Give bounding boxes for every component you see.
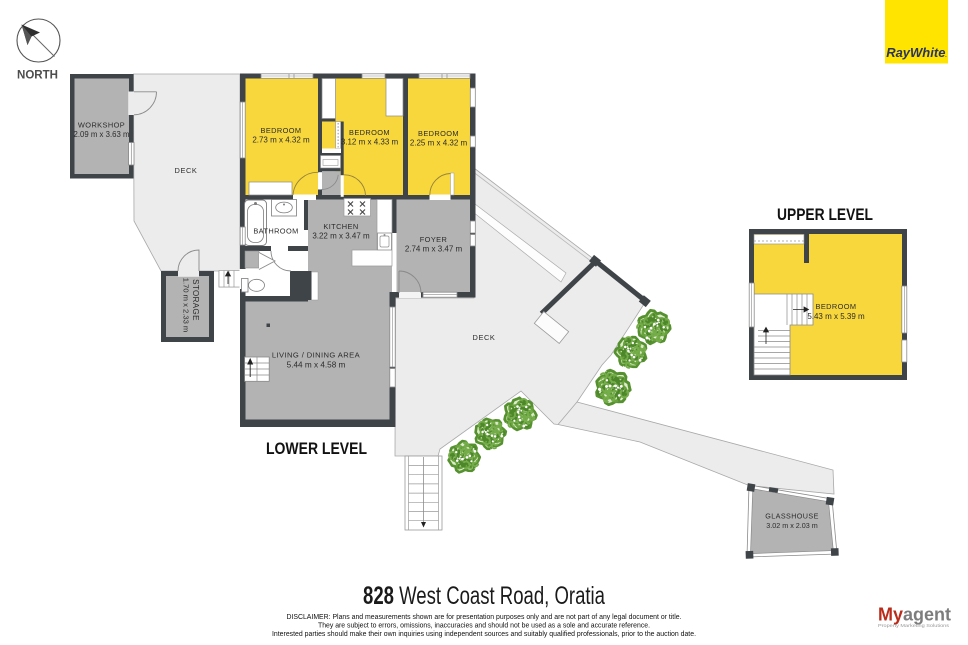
svg-text:5.44 m x 4.58 m: 5.44 m x 4.58 m	[287, 361, 346, 370]
svg-text:BEDROOM: BEDROOM	[418, 129, 459, 138]
svg-text:GLASSHOUSE: GLASSHOUSE	[765, 512, 819, 521]
svg-text:Property Marketing Solutions: Property Marketing Solutions	[878, 623, 950, 629]
svg-text:DECK: DECK	[473, 333, 496, 342]
svg-text:BATHROOM: BATHROOM	[253, 227, 298, 236]
svg-text:KITCHEN: KITCHEN	[323, 222, 358, 231]
svg-text:Myagent: Myagent	[878, 604, 951, 625]
svg-text:NORTH: NORTH	[17, 70, 58, 82]
svg-text:Interested parties should make: Interested parties should make their own…	[272, 629, 696, 638]
svg-text:BEDROOM: BEDROOM	[816, 302, 857, 311]
svg-text:DECK: DECK	[175, 166, 198, 175]
svg-text:3.02 m x 2.03 m: 3.02 m x 2.03 m	[766, 521, 818, 530]
svg-text:BEDROOM: BEDROOM	[349, 128, 390, 137]
svg-text:2.74 m x 3.47 m: 2.74 m x 3.47 m	[405, 244, 463, 253]
svg-text:LIVING / DINING AREA: LIVING / DINING AREA	[272, 351, 361, 360]
svg-text:LOWER LEVEL: LOWER LEVEL	[266, 440, 367, 458]
svg-text:BEDROOM: BEDROOM	[261, 126, 302, 135]
svg-text:3.22 m x 3.47 m: 3.22 m x 3.47 m	[312, 231, 370, 240]
svg-text:STORAGE: STORAGE	[191, 279, 200, 321]
svg-text:2.09 m x 3.63 m: 2.09 m x 3.63 m	[74, 130, 130, 139]
svg-text:WORKSHOP: WORKSHOP	[78, 121, 125, 130]
svg-text:UPPER LEVEL: UPPER LEVEL	[777, 206, 873, 224]
svg-text:828 West Coast Road, Oratia: 828 West Coast Road, Oratia	[363, 582, 605, 610]
svg-text:RayWhite.: RayWhite.	[886, 45, 947, 60]
svg-text:5.43 m x 5.39 m: 5.43 m x 5.39 m	[807, 312, 865, 321]
svg-text:2.25 m x 4.32 m: 2.25 m x 4.32 m	[410, 138, 468, 147]
svg-text:3.12 m x 4.33 m: 3.12 m x 4.33 m	[341, 137, 399, 146]
svg-text:2.73 m x 4.32 m: 2.73 m x 4.32 m	[252, 135, 310, 144]
svg-text:FOYER: FOYER	[420, 235, 447, 244]
svg-text:1.70 m x 2.33 m: 1.70 m x 2.33 m	[182, 278, 191, 332]
